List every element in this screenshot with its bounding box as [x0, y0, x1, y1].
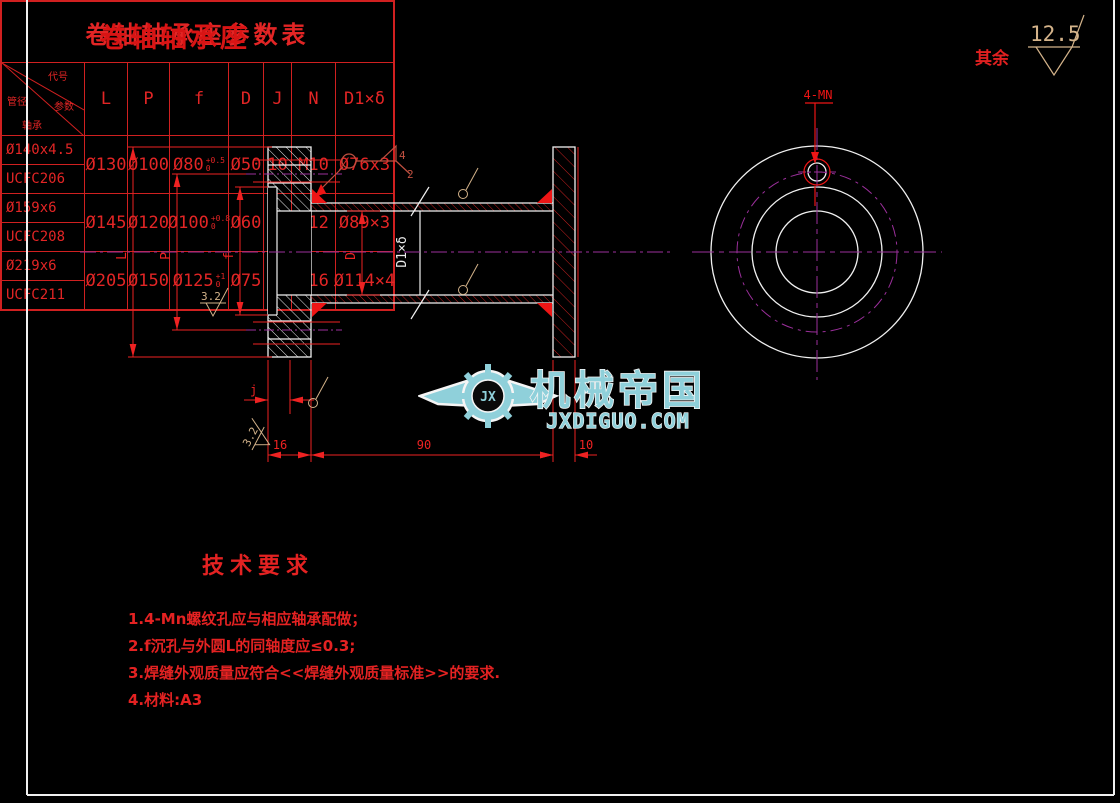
tube-spec-label: D1×δ: [395, 236, 410, 267]
dim-16: 16: [273, 438, 287, 452]
roughness-3-2-top-value: 3.2: [201, 290, 221, 303]
tube-wall-bottom: [311, 295, 553, 303]
tech-requirement-item: 4.材料:A3: [128, 687, 608, 714]
dim-10: 10: [579, 438, 593, 452]
global-roughness: 12.5: [1028, 15, 1084, 75]
tech-requirement-item: 1.4-Mn螺纹孔应与相应轴承配做；: [128, 606, 608, 633]
logo-initials: JX: [480, 390, 496, 405]
dim-label-P: P: [159, 252, 174, 260]
surface-note-label: 其余: [975, 44, 1009, 69]
end-view: 4-MN: [692, 88, 942, 380]
watermark-url: JXDIGUO.COM: [546, 409, 689, 433]
tech-requirements: 技术要求 1.4-Mn螺纹孔应与相应轴承配做； 2.f沉孔与外圆L的同轴度应≤0…: [128, 548, 608, 714]
dim-label-L: L: [115, 252, 130, 260]
roughness-3-2-bottom: 3.2: [239, 418, 277, 456]
dim-label-f: f: [222, 252, 237, 260]
weld-callout: 4 2: [315, 146, 414, 197]
weld-size: 4: [399, 149, 406, 162]
centerlines: [80, 174, 672, 330]
tech-requirement-item: 3.焊缝外观质量应符合<<焊缝外观质量标准>>的要求.: [128, 660, 608, 687]
dim-90: 90: [417, 438, 431, 452]
page-title: 卷轴轴承座: [100, 16, 250, 55]
tech-requirements-heading: 技术要求: [202, 548, 608, 580]
cad-canvas: L P f D j 16 90 10 D1×δ 3.2: [0, 0, 1120, 803]
weld-count: 2: [407, 168, 414, 181]
dim-label-j: j: [250, 383, 257, 397]
tube-wall-top: [311, 203, 553, 211]
watermark: JX 机械帝国 JXDIGUO.COM: [418, 356, 710, 436]
dim-label-D: D: [344, 252, 359, 260]
hole-leader: [805, 103, 833, 206]
tech-requirement-item: 2.f沉孔与外圆L的同轴度应≤0.3;: [128, 633, 608, 660]
hole-callout: 4-MN: [804, 88, 833, 102]
global-roughness-value: 12.5: [1030, 22, 1081, 46]
watermark-brand: 机械帝国: [530, 368, 706, 414]
